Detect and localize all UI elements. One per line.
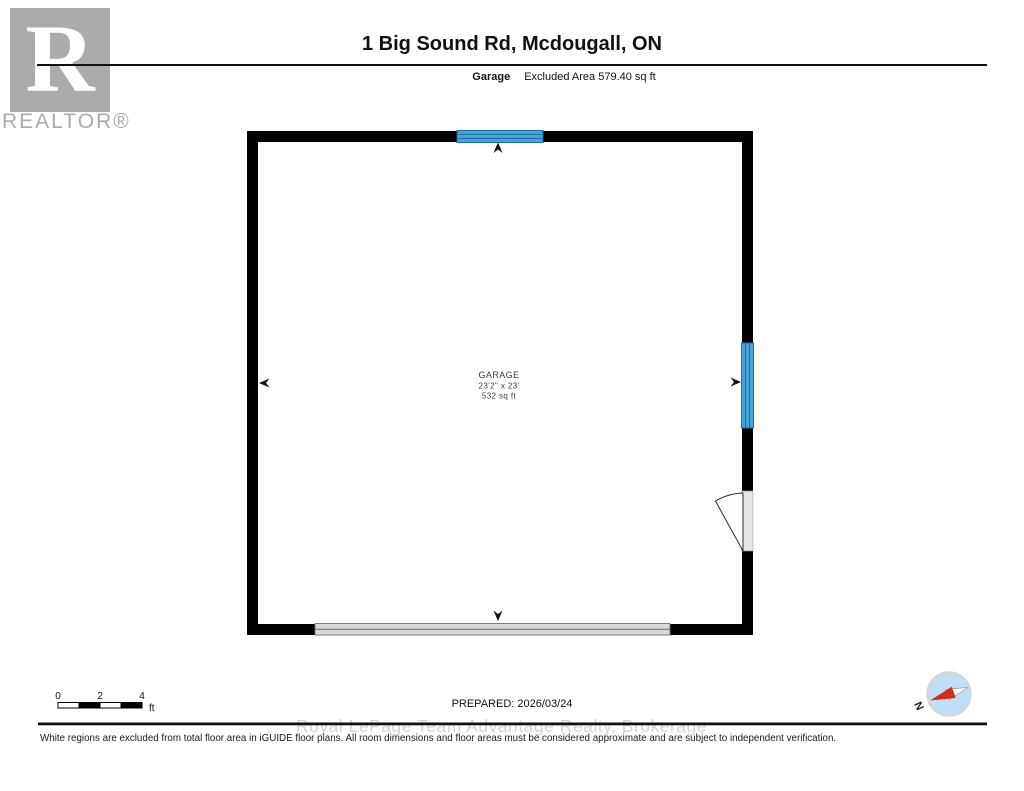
garage-door: [315, 624, 670, 636]
footer-divider: [38, 723, 987, 726]
floorplan-page: R REALTOR® 1 Big Sound Rd, Mcdougall, ON…: [0, 0, 1024, 791]
arrow-up-icon: [494, 143, 503, 154]
floorplan-drawing: GARAGE 23'2" x 23' 532 sq ft 0 2 4 ft N: [0, 0, 1024, 791]
arrow-left-icon: [259, 379, 270, 388]
room-name: GARAGE: [479, 370, 520, 380]
disclaimer-text: White regions are excluded from total fl…: [40, 733, 1000, 744]
wall-left: [247, 131, 258, 635]
room-area: 532 sq ft: [482, 392, 517, 401]
arrow-down-icon: [494, 611, 503, 622]
entry-door: [716, 491, 754, 551]
window-right: [742, 343, 754, 428]
prepared-date: PREPARED: 2026/03/24: [0, 698, 1024, 710]
door-swing-arc: [716, 493, 744, 551]
window-top: [457, 131, 543, 143]
room-dimensions: 23'2" x 23': [479, 382, 520, 391]
room-label: GARAGE 23'2" x 23' 532 sq ft: [479, 370, 520, 401]
arrow-right-icon: [731, 378, 742, 387]
